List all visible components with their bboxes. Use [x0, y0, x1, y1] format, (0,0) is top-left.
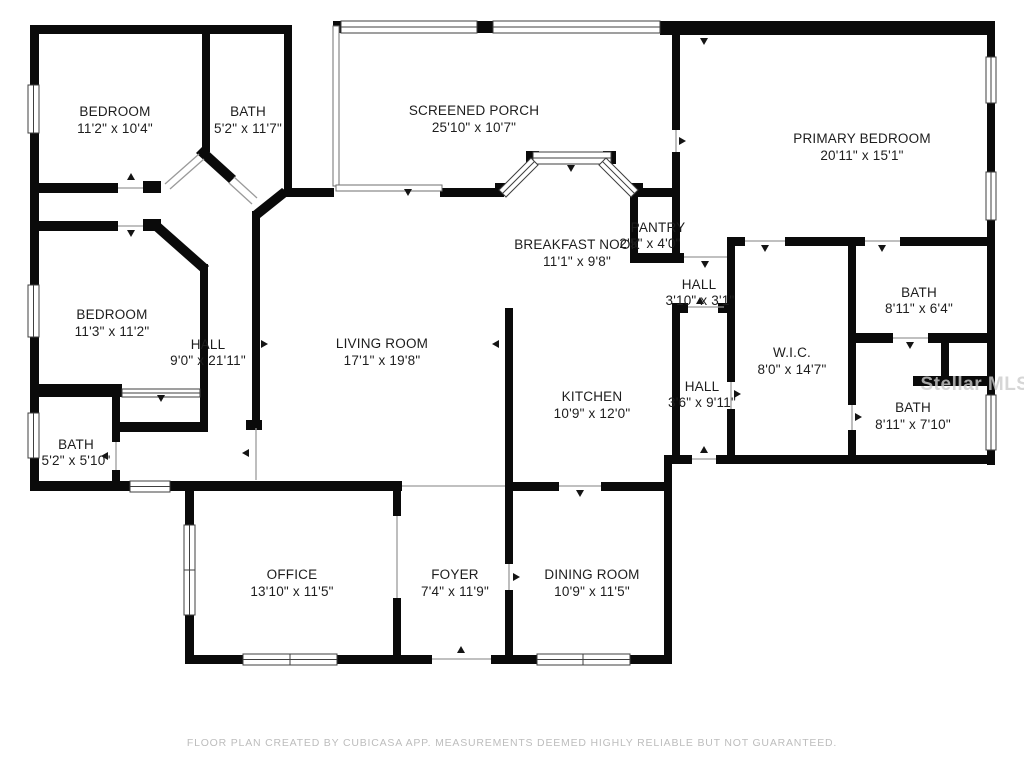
- room-dims-bath-1: 5'2" x 11'7": [214, 121, 282, 136]
- room-dims-bath-3: 8'11" x 7'10": [875, 417, 951, 432]
- wall-segment: [848, 430, 856, 457]
- wall-segment: [398, 655, 432, 664]
- wall-segment: [30, 384, 122, 397]
- room-label-bedroom-2: BEDROOM: [76, 307, 147, 322]
- wall-segment: [30, 25, 292, 34]
- wall-segment: [246, 420, 262, 430]
- wall-segment: [727, 409, 735, 457]
- room-dims-hall-main: 9'0" x 21'11": [170, 353, 246, 368]
- wall-segment: [491, 655, 513, 664]
- room-dims-bedroom-2: 11'3" x 11'2": [75, 324, 150, 339]
- wall-segment: [30, 481, 402, 491]
- wall-segment: [118, 422, 208, 432]
- room-dims-bedroom-1: 11'2" x 10'4": [77, 121, 153, 136]
- wall-segment: [30, 221, 118, 231]
- room-label-dining-room: DINING ROOM: [544, 567, 639, 582]
- wall-segment: [112, 394, 120, 442]
- wall-segment: [284, 34, 292, 192]
- room-label-hall-lower: HALL: [685, 379, 720, 394]
- room-dims-living-room: 17'1" x 19'8": [344, 353, 421, 368]
- wall-segment: [284, 188, 334, 197]
- room-dims-screened-porch: 25'10" x 10'7": [432, 120, 516, 135]
- room-label-office: OFFICE: [267, 567, 318, 582]
- room-label-bedroom-1: BEDROOM: [79, 104, 150, 119]
- room-label-bath-4: BATH: [58, 437, 94, 452]
- room-dims-pantry: 2'5" x 4'0": [619, 236, 680, 251]
- wall-segment: [393, 482, 401, 516]
- wall-segment: [202, 34, 210, 152]
- footer-disclaimer: FLOOR PLAN CREATED BY CUBICASA APP. MEAS…: [187, 737, 837, 749]
- room-label-hall-upper: HALL: [682, 277, 717, 292]
- room-dims-foyer: 7'4" x 11'9": [421, 584, 489, 599]
- wall-segment: [900, 237, 995, 246]
- wall-segment: [393, 598, 401, 664]
- wall-segment: [30, 183, 118, 193]
- room-label-hall-main: HALL: [191, 337, 226, 352]
- floor-plan-canvas: BEDROOM 11'2" x 10'4" BATH 5'2" x 11'7" …: [0, 0, 1024, 768]
- room-label-screened-porch: SCREENED PORCH: [409, 103, 539, 118]
- room-dims-bath-2: 8'11" x 6'4": [885, 301, 953, 316]
- room-label-kitchen: KITCHEN: [562, 389, 623, 404]
- wall-segment: [848, 237, 856, 405]
- room-dims-office: 13'10" x 11'5": [250, 584, 333, 599]
- wall-segment: [928, 333, 995, 343]
- wall-segment: [660, 21, 995, 35]
- room-dims-breakfast-nook: 11'1" x 9'8": [543, 254, 611, 269]
- room-dims-primary-bedroom: 20'11" x 15'1": [820, 148, 903, 163]
- wall-segment: [672, 35, 680, 130]
- room-dims-wic: 8'0" x 14'7": [758, 362, 827, 377]
- room-label-pantry: PANTRY: [631, 220, 686, 235]
- wall-segment: [601, 482, 672, 491]
- screen-wall: [336, 185, 442, 191]
- room-label-bath-2: BATH: [901, 285, 937, 300]
- room-label-wic: W.I.C.: [773, 345, 811, 360]
- wall-segment: [477, 21, 493, 33]
- wall-segment: [505, 482, 559, 491]
- room-label-bath-3: BATH: [895, 400, 931, 415]
- room-dims-hall-upper: 3'10" x 3'1": [666, 293, 735, 308]
- room-label-living-room: LIVING ROOM: [336, 336, 428, 351]
- wall-segment: [672, 455, 692, 464]
- room-dims-kitchen: 10'9" x 12'0": [554, 406, 631, 421]
- room-label-primary-bedroom: PRIMARY BEDROOM: [793, 131, 931, 146]
- wall-segment: [856, 333, 893, 343]
- room-dims-hall-lower: 3'6" x 9'11": [668, 395, 736, 410]
- room-label-bath-1: BATH: [230, 104, 266, 119]
- screen-wall: [333, 26, 339, 186]
- wall-segment: [716, 455, 995, 464]
- wall-segment: [505, 590, 513, 664]
- wall-segment: [440, 188, 504, 197]
- room-label-foyer: FOYER: [431, 567, 479, 582]
- wall-segment: [252, 211, 260, 426]
- wall-segment: [630, 253, 684, 263]
- wall-segment: [664, 455, 672, 664]
- stellar-mls-watermark: Stellar MLS: [921, 374, 1024, 395]
- room-dims-dining-room: 10'9" x 11'5": [554, 584, 630, 599]
- room-dims-bath-4: 5'2" x 5'10": [42, 453, 111, 468]
- wall-segment: [143, 181, 161, 193]
- wall-segment: [672, 303, 680, 457]
- wall-segment: [505, 308, 513, 564]
